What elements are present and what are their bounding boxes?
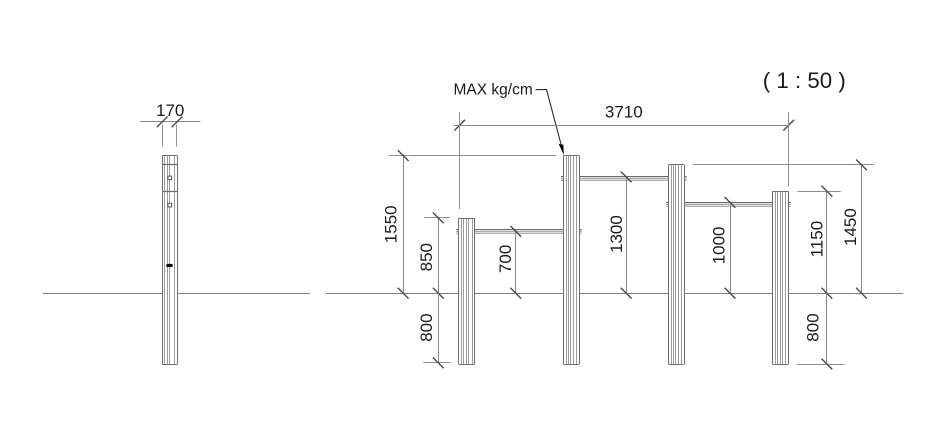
svg-text:1450: 1450 bbox=[841, 208, 860, 246]
svg-text:850: 850 bbox=[417, 243, 436, 271]
svg-text:1550: 1550 bbox=[381, 205, 400, 243]
svg-text:MAX kg/cm: MAX kg/cm bbox=[454, 81, 533, 98]
svg-text:( 1 : 50 ): ( 1 : 50 ) bbox=[763, 68, 846, 93]
svg-text:1300: 1300 bbox=[607, 215, 626, 253]
svg-text:800: 800 bbox=[417, 313, 436, 341]
svg-text:1150: 1150 bbox=[807, 221, 826, 258]
svg-text:800: 800 bbox=[804, 313, 823, 341]
svg-text:700: 700 bbox=[496, 245, 515, 273]
svg-text:1000: 1000 bbox=[710, 226, 729, 264]
svg-text:3710: 3710 bbox=[605, 103, 643, 122]
svg-text:170: 170 bbox=[156, 101, 184, 120]
